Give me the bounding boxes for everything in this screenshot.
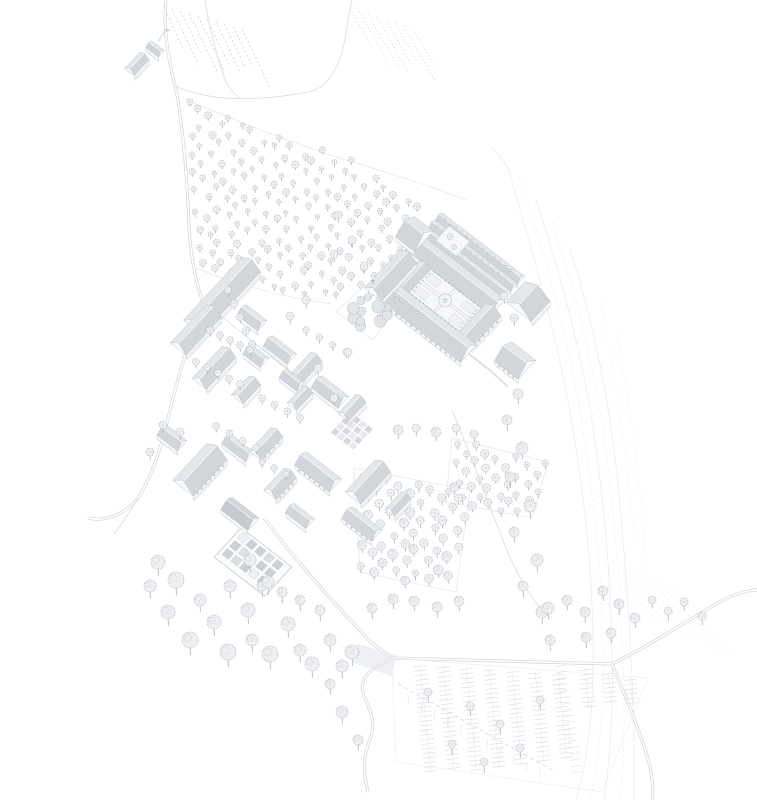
farmstead bbox=[125, 29, 170, 80]
junction-plaza bbox=[352, 644, 396, 676]
parking-lot bbox=[392, 658, 648, 792]
village-buildings bbox=[157, 257, 412, 546]
vineyard-rows bbox=[163, 6, 436, 89]
road-network bbox=[88, 0, 757, 800]
site-plan-stage bbox=[0, 0, 757, 800]
site-plan bbox=[0, 0, 757, 800]
monastery-complex bbox=[337, 213, 552, 387]
